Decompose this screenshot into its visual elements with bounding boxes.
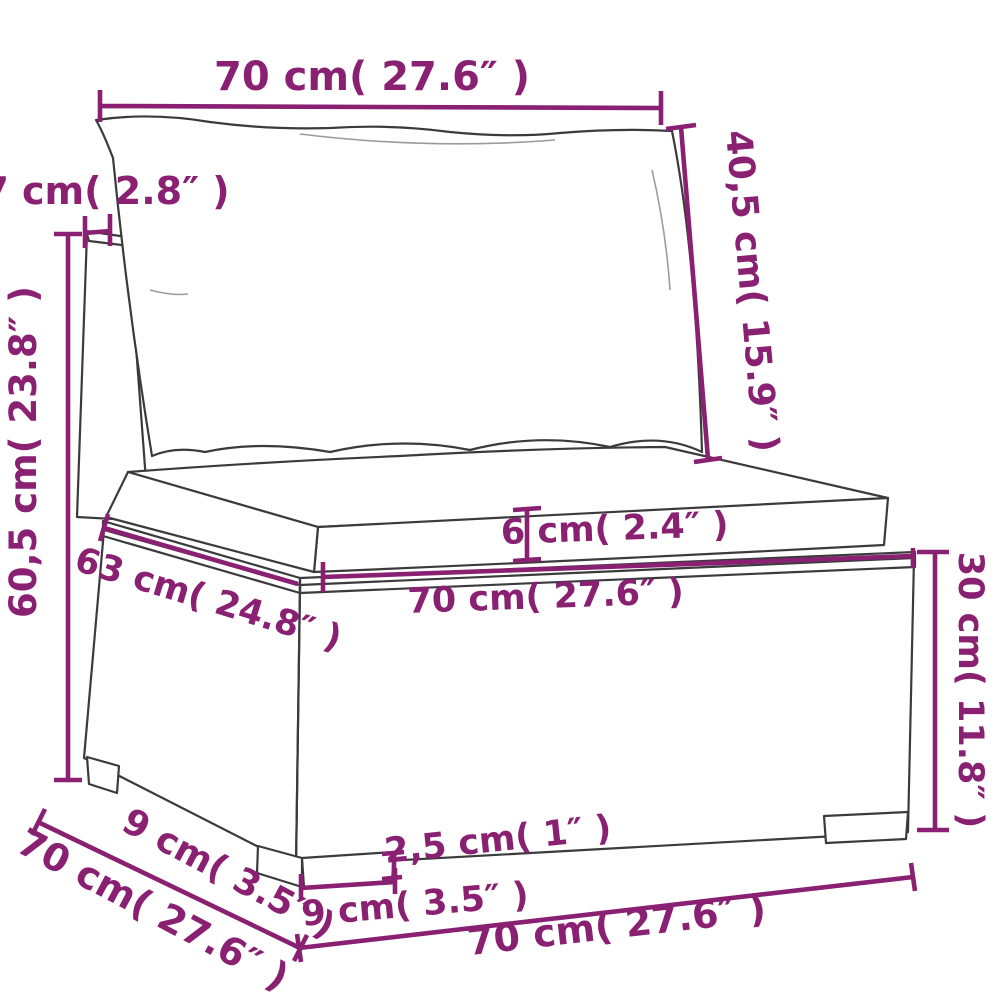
- sofa-dimension-diagram: 70 cm( 27.6″ ) 40,5 cm( 15.9″ ) 7 cm( 2.…: [0, 0, 1000, 1000]
- dim-back-height-label: 40,5 cm( 15.9″ ): [717, 128, 786, 453]
- foot-back-left: [87, 757, 119, 793]
- sofa-drawing: [77, 116, 915, 887]
- back-pillow: [96, 116, 702, 456]
- dim-cushion-thickness-label: 6 cm( 2.4″ ): [500, 505, 729, 553]
- dim-seat-front-width-label: 70 cm( 27.6″ ): [407, 572, 685, 622]
- dim-armrest-width-label: 7 cm( 2.8″ ): [0, 169, 230, 213]
- dim-top-width-label: 70 cm( 27.6″ ): [214, 54, 530, 100]
- dim-total-height-label: 60,5 cm( 23.8″ ): [2, 286, 45, 618]
- dim-base-height-label: 30 cm( 11.8″ ): [950, 552, 990, 828]
- dim-foot-height-label: 2,5 cm( 1″ ): [383, 808, 614, 872]
- dimension-diagram-canvas: 70 cm( 27.6″ ) 40,5 cm( 15.9″ ) 7 cm( 2.…: [0, 0, 1000, 1000]
- dim-base-height-line: [917, 552, 949, 830]
- foot-front-right: [824, 812, 908, 843]
